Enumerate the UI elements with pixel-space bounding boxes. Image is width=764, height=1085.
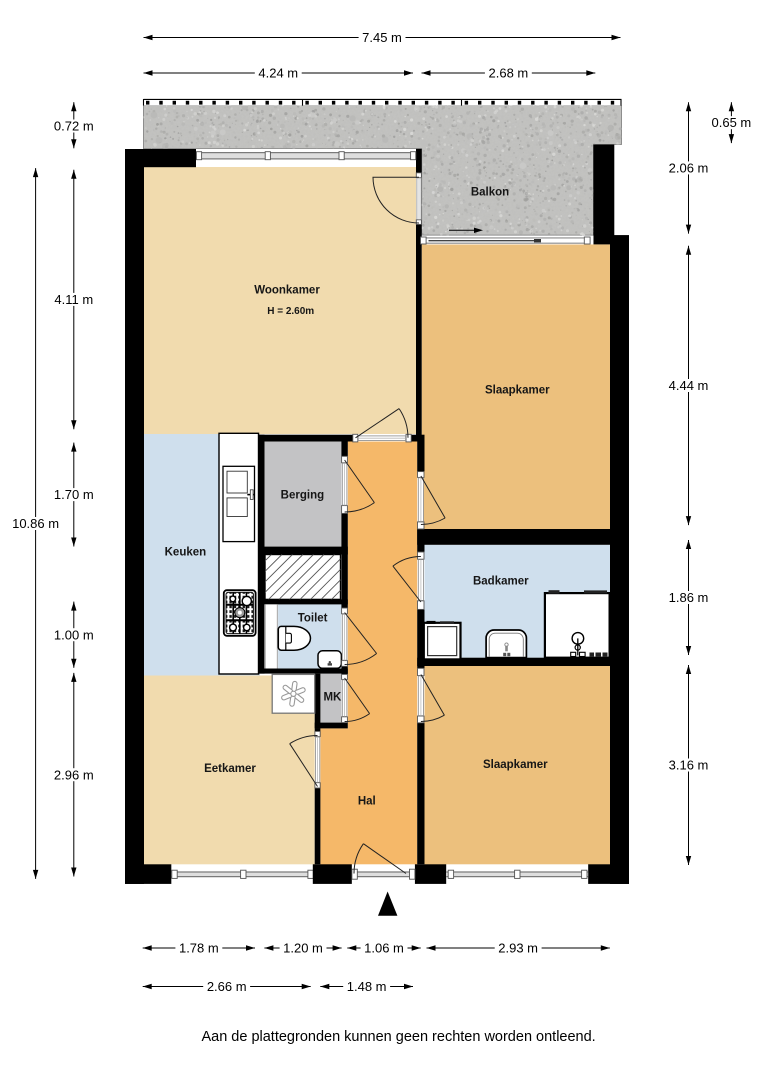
svg-text:4.11 m: 4.11 m (54, 292, 93, 307)
svg-text:Balkon: Balkon (471, 187, 509, 199)
svg-text:7.45 m: 7.45 m (362, 30, 402, 45)
svg-text:Woonkamer: Woonkamer (254, 285, 320, 297)
svg-text:2.93 m: 2.93 m (498, 941, 538, 956)
svg-text:1.78 m: 1.78 m (179, 941, 219, 956)
svg-text:0.65 m: 0.65 m (712, 115, 752, 130)
svg-text:2.68 m: 2.68 m (489, 66, 529, 81)
svg-text:4.24 m: 4.24 m (258, 66, 298, 81)
svg-text:H = 2.60m: H = 2.60m (267, 306, 314, 317)
svg-text:10.86 m: 10.86 m (12, 516, 59, 531)
svg-text:Eetkamer: Eetkamer (204, 763, 256, 775)
svg-text:Slaapkamer: Slaapkamer (483, 759, 548, 771)
svg-text:4.44 m: 4.44 m (669, 378, 709, 393)
svg-text:1.86 m: 1.86 m (669, 590, 709, 605)
svg-text:Slaapkamer: Slaapkamer (485, 384, 550, 396)
svg-text:1.20 m: 1.20 m (283, 941, 323, 956)
svg-text:0.72 m: 0.72 m (54, 119, 94, 134)
svg-text:1.70 m: 1.70 m (54, 487, 94, 502)
svg-text:2.06 m: 2.06 m (669, 161, 709, 176)
svg-text:Badkamer: Badkamer (473, 576, 529, 588)
svg-text:1.06 m: 1.06 m (364, 941, 404, 956)
svg-text:Aan de plattegronden kunnen ge: Aan de plattegronden kunnen geen rechten… (201, 1029, 595, 1045)
svg-text:3.16 m: 3.16 m (669, 758, 709, 773)
svg-text:Berging: Berging (281, 490, 324, 502)
svg-text:MK: MK (323, 692, 342, 704)
svg-text:1.48 m: 1.48 m (347, 979, 387, 994)
svg-text:Hal: Hal (358, 796, 376, 808)
svg-text:2.66 m: 2.66 m (207, 979, 247, 994)
svg-text:Keuken: Keuken (165, 547, 207, 559)
svg-text:2.96 m: 2.96 m (54, 767, 94, 782)
svg-text:Toilet: Toilet (298, 613, 328, 625)
svg-text:1.00 m: 1.00 m (54, 627, 94, 642)
